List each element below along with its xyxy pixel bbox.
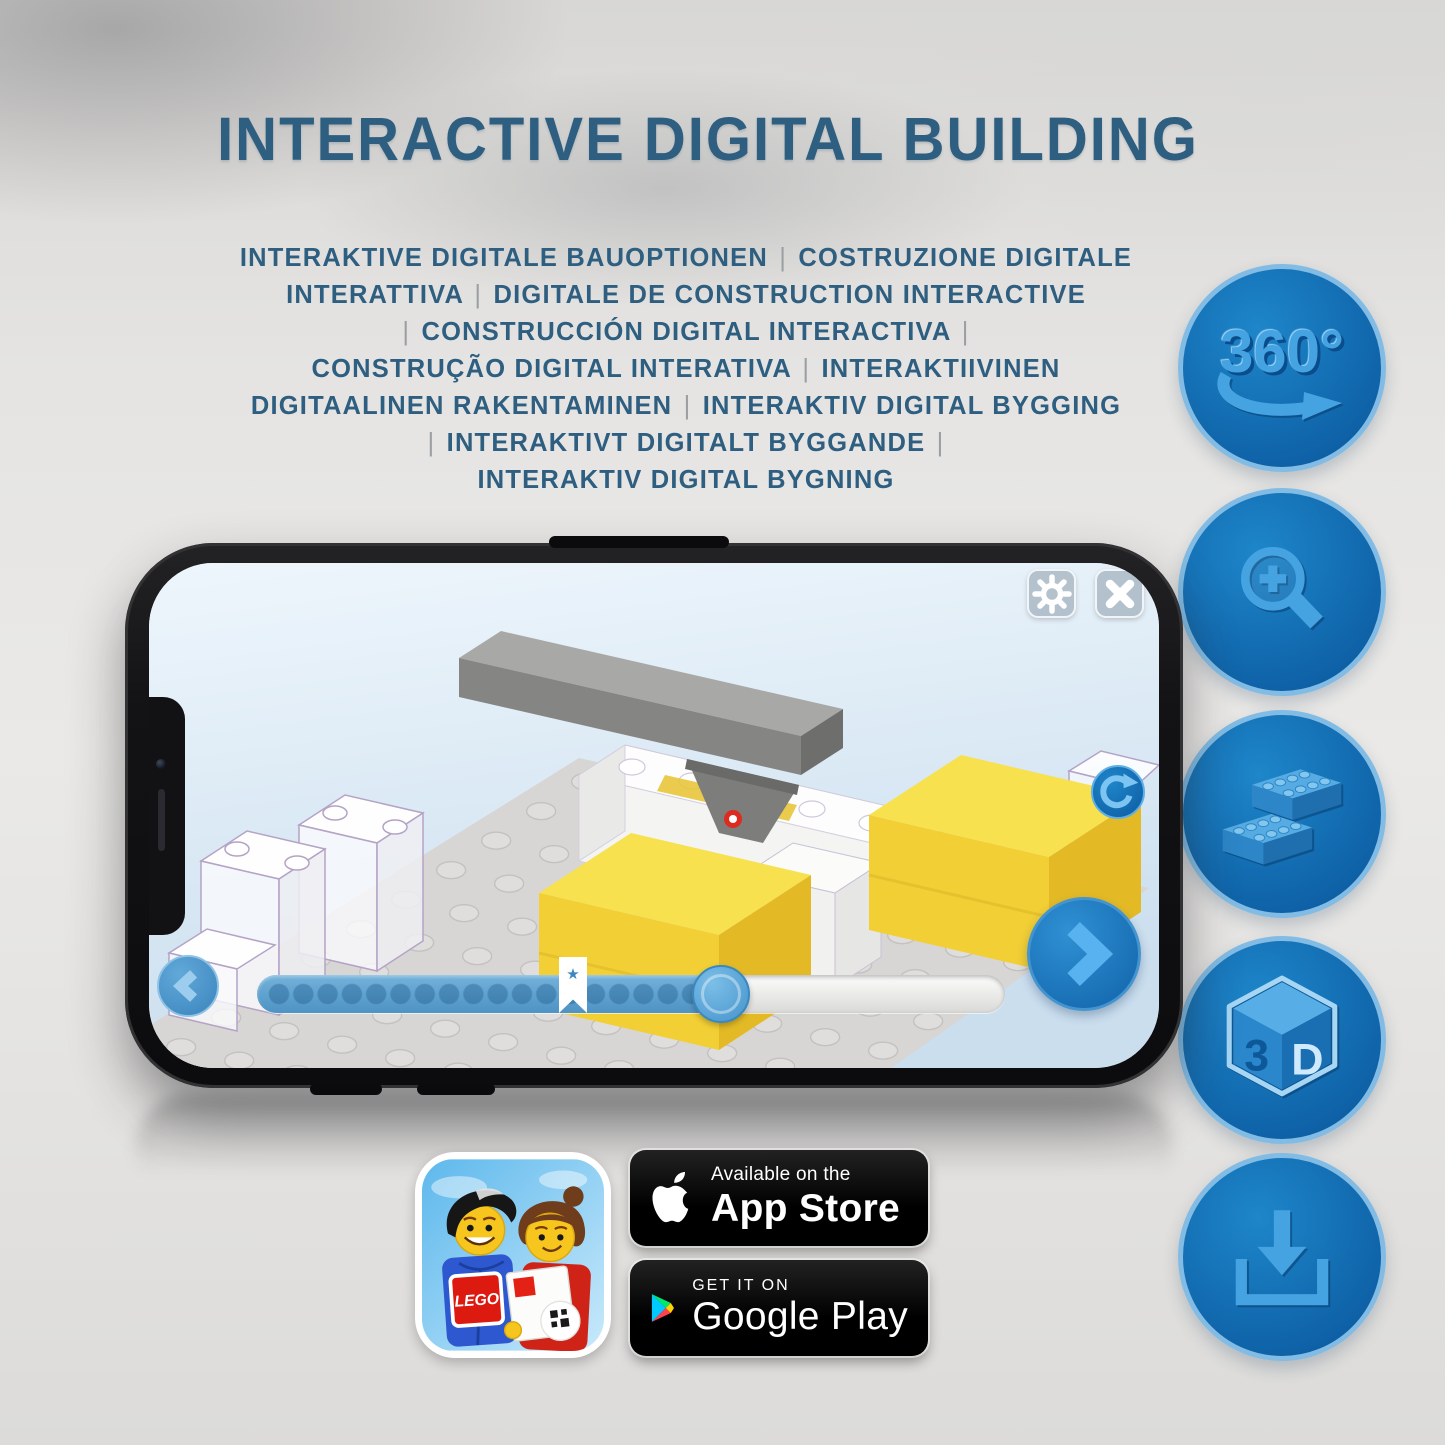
phone-notch	[149, 697, 185, 935]
cube-face-d: D	[1291, 1036, 1323, 1085]
multilingual-subtitle: INTERAKTIVE DIGITALE BAUOPTIONEN | COSTR…	[0, 240, 1372, 499]
settings-button[interactable]	[1027, 569, 1076, 618]
download-icon	[1178, 1153, 1386, 1361]
phone-power-button	[549, 536, 729, 548]
cube-face-3: 3	[1244, 1031, 1269, 1080]
slider-step-dots	[267, 975, 713, 1013]
earpiece-speaker	[158, 789, 165, 851]
next-step-button[interactable]	[1027, 897, 1141, 1011]
lego-minifigures-illustration: LEGO	[422, 1159, 604, 1351]
phone-volume-button	[417, 1083, 495, 1095]
google-play-icon	[650, 1284, 675, 1332]
two-bricks-icon	[1209, 746, 1355, 882]
build-progress-slider[interactable]: ★	[257, 975, 1005, 1013]
boy-minifigure: LEGO	[441, 1188, 518, 1347]
google-play-badge[interactable]: GET IT ON Google Play	[630, 1260, 928, 1356]
subtitle-line: | CONSTRUCCIÓN DIGITAL INTERACTIVA |	[0, 314, 1372, 351]
lego-app-icon: LEGO	[415, 1152, 611, 1358]
close-button[interactable]	[1095, 569, 1144, 618]
front-camera	[156, 759, 166, 769]
rotate-reset-icon	[1093, 767, 1143, 817]
close-icon	[1099, 573, 1141, 615]
subtitle-line: INTERAKTIVE DIGITALE BAUOPTIONEN | COSTR…	[0, 240, 1372, 277]
360-rotation-icon: 360°	[1178, 264, 1386, 472]
page-title: INTERACTIVE DIGITAL BUILDING	[0, 104, 1416, 174]
phone-screen: ★	[149, 563, 1159, 1068]
subtitle-line: DIGITAALINEN RAKENTAMINEN | INTERAKTIV D…	[0, 388, 1372, 425]
cube-icon: 3 D	[1219, 972, 1345, 1108]
download-arrow-tray-icon	[1221, 1196, 1343, 1318]
marketing-page: INTERACTIVE DIGITAL BUILDING INTERAKTIVE…	[0, 0, 1445, 1445]
magnifier-plus-icon	[1226, 536, 1338, 648]
subtitle-line: CONSTRUÇÃO DIGITAL INTERATIVA | INTERAKT…	[0, 351, 1372, 388]
slider-thumb[interactable]	[692, 965, 750, 1023]
smartphone: ★	[125, 543, 1183, 1088]
subtitle-line: INTERATTIVA | DIGITALE DE CONSTRUCTION I…	[0, 277, 1372, 314]
app-store-line1: Available on the	[711, 1164, 900, 1187]
subtitle-line: INTERAKTIV DIGITAL BYGNING	[0, 462, 1372, 499]
chevron-left-icon	[159, 957, 217, 1015]
google-play-line2: Google Play	[692, 1295, 908, 1340]
apple-icon	[650, 1172, 694, 1224]
phone-volume-button	[310, 1083, 382, 1095]
slider-fill	[257, 975, 721, 1013]
chevron-right-icon	[1030, 900, 1138, 1008]
3d-cube-icon: 3 D	[1178, 936, 1386, 1144]
app-store-line2: App Store	[711, 1187, 900, 1232]
google-play-line1: GET IT ON	[692, 1276, 908, 1295]
lego-brick-icon	[1178, 710, 1386, 918]
rotation-arrow-icon	[1210, 372, 1354, 420]
lego-logo-text: LEGO	[454, 1291, 500, 1311]
zoom-in-icon	[1178, 488, 1386, 696]
gear-icon	[1031, 573, 1073, 615]
red-round-piece	[724, 810, 742, 828]
previous-step-button[interactable]	[157, 955, 219, 1017]
rotate-reset-button[interactable]	[1091, 765, 1145, 819]
app-store-badge[interactable]: Available on the App Store	[630, 1150, 928, 1246]
subtitle-line: | INTERAKTIVT DIGITALT BYGGANDE |	[0, 425, 1372, 462]
